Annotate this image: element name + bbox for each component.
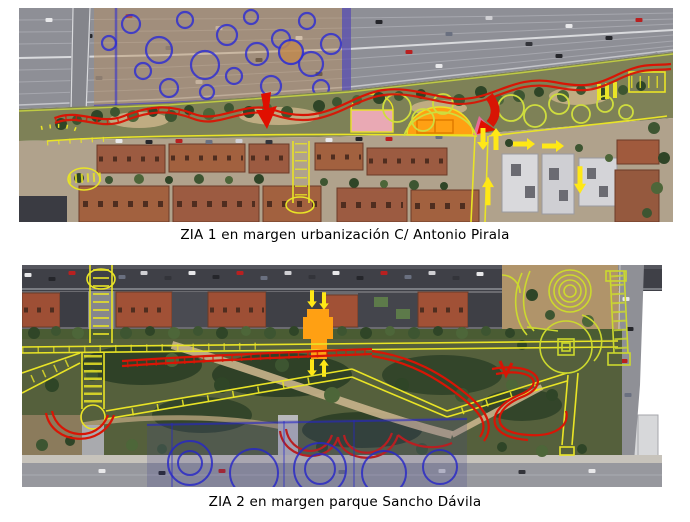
zia2-aerial-image — [22, 265, 662, 487]
report-page: ZIA 1 en margen urbanización C/ Antonio … — [0, 0, 690, 522]
modern-buildings — [502, 154, 617, 214]
blue-plan-overlay — [147, 417, 467, 487]
zia1-caption: ZIA 1 en margen urbanización C/ Antonio … — [0, 227, 690, 243]
zia1-aerial-image — [19, 8, 673, 222]
building-row-1 — [97, 143, 447, 175]
building-row-2 — [79, 186, 479, 222]
zia2-caption: ZIA 2 en margen parque Sancho Dávila — [0, 494, 690, 510]
